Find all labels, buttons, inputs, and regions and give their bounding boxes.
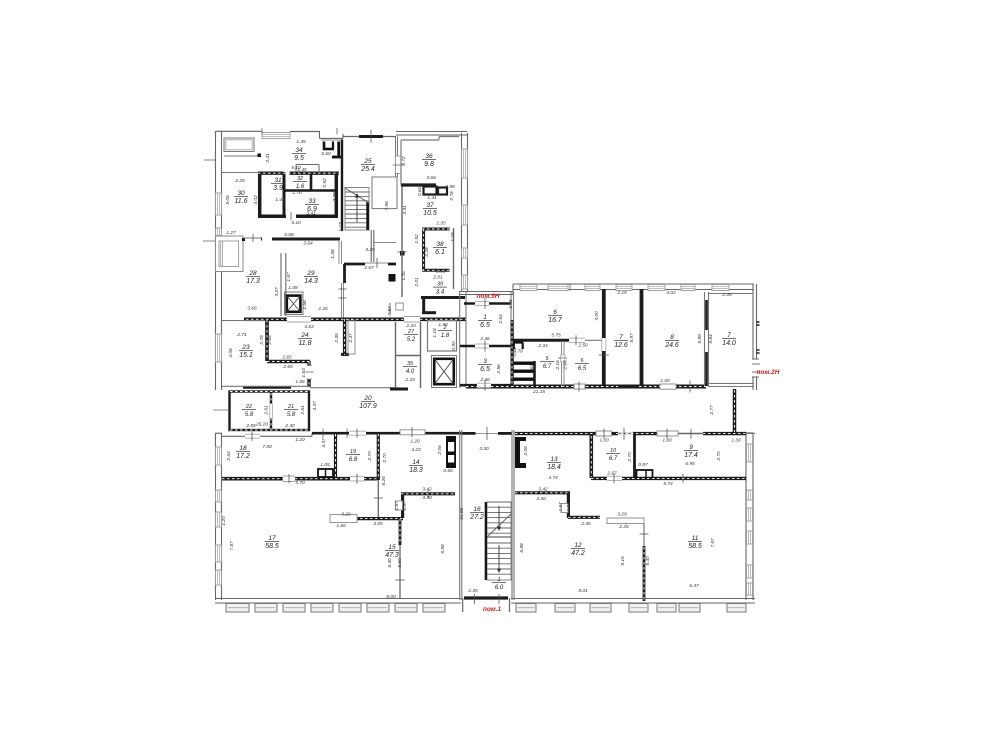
svg-text:2.56: 2.56	[496, 364, 502, 375]
svg-text:21: 21	[287, 404, 294, 410]
svg-text:1.63: 1.63	[529, 364, 535, 374]
svg-text:2.01: 2.01	[432, 275, 443, 281]
svg-text:0.97: 0.97	[638, 462, 648, 468]
svg-text:1.66: 1.66	[336, 523, 346, 529]
svg-text:1.57: 1.57	[402, 501, 408, 511]
svg-text:7.87: 7.87	[229, 541, 235, 551]
svg-text:1.06: 1.06	[295, 379, 305, 385]
svg-text:32: 32	[297, 176, 303, 182]
svg-text:7.87: 7.87	[710, 538, 716, 548]
svg-text:17.4: 17.4	[684, 452, 698, 459]
svg-text:14.3: 14.3	[304, 278, 318, 285]
svg-text:5.25: 5.25	[381, 476, 387, 486]
svg-text:0.90: 0.90	[451, 341, 457, 351]
svg-text:24: 24	[300, 332, 309, 339]
svg-text:1.30: 1.30	[731, 438, 741, 444]
svg-text:9.70: 9.70	[295, 480, 305, 486]
svg-text:1.00: 1.00	[599, 438, 609, 444]
svg-text:6.5: 6.5	[480, 366, 490, 373]
svg-text:1.41: 1.41	[427, 195, 437, 201]
svg-text:5.99: 5.99	[697, 334, 703, 344]
svg-text:0.92: 0.92	[322, 178, 328, 188]
svg-text:3.4: 3.4	[436, 290, 445, 296]
svg-text:1.52: 1.52	[414, 234, 420, 244]
svg-text:1.57: 1.57	[394, 501, 400, 511]
svg-text:10.5: 10.5	[423, 210, 437, 217]
svg-text:6.7: 6.7	[609, 456, 618, 462]
svg-text:1.45: 1.45	[297, 167, 307, 173]
svg-text:2.78: 2.78	[449, 191, 455, 202]
svg-text:1.8: 1.8	[441, 333, 450, 339]
svg-text:2.70: 2.70	[627, 452, 633, 463]
svg-text:2.46: 2.46	[479, 336, 490, 342]
svg-text:0.61: 0.61	[417, 187, 423, 197]
svg-text:3.02: 3.02	[253, 195, 259, 205]
svg-text:2.06: 2.06	[523, 446, 529, 457]
svg-text:4.08: 4.08	[228, 348, 234, 358]
svg-text:3.41: 3.41	[306, 211, 316, 217]
svg-text:2.70: 2.70	[367, 451, 373, 462]
svg-text:5.10: 5.10	[291, 220, 301, 226]
svg-text:5.40: 5.40	[645, 556, 651, 566]
svg-text:20: 20	[363, 395, 372, 402]
svg-text:1.55: 1.55	[508, 299, 514, 309]
svg-text:58.5: 58.5	[265, 543, 279, 550]
svg-text:38: 38	[436, 241, 444, 248]
svg-text:2.06: 2.06	[437, 445, 443, 456]
svg-text:1: 1	[497, 577, 500, 583]
svg-text:31: 31	[274, 177, 282, 184]
svg-text:18.3: 18.3	[409, 467, 423, 474]
svg-text:3.42: 3.42	[538, 487, 548, 493]
svg-text:1.27: 1.27	[226, 230, 236, 236]
svg-text:2.25: 2.25	[234, 178, 245, 184]
svg-text:3.05: 3.05	[373, 521, 383, 527]
svg-text:2.68: 2.68	[563, 360, 569, 371]
svg-text:22: 22	[245, 404, 252, 410]
svg-text:3.30: 3.30	[479, 446, 489, 452]
svg-text:34: 34	[295, 147, 303, 154]
svg-text:21.15: 21.15	[532, 389, 545, 395]
svg-text:8.00: 8.00	[386, 594, 396, 600]
svg-text:4.63: 4.63	[304, 324, 314, 330]
svg-text:47.3: 47.3	[385, 552, 399, 559]
svg-text:19: 19	[350, 449, 356, 455]
svg-text:1.35: 1.35	[468, 588, 478, 594]
svg-text:11.8: 11.8	[298, 340, 311, 347]
svg-text:5.8: 5.8	[245, 412, 254, 418]
svg-text:29: 29	[306, 270, 315, 277]
svg-text:1.90: 1.90	[438, 322, 448, 328]
svg-text:6.5: 6.5	[480, 322, 490, 329]
svg-text:7.00: 7.00	[262, 444, 272, 450]
svg-text:3: 3	[483, 358, 487, 365]
svg-text:2.55: 2.55	[245, 423, 256, 429]
svg-text:17.3: 17.3	[246, 278, 260, 285]
svg-text:2.01: 2.01	[414, 277, 420, 288]
svg-text:1.20: 1.20	[410, 439, 420, 445]
svg-text:3.27: 3.27	[274, 287, 280, 297]
svg-text:5.97: 5.97	[629, 333, 635, 343]
svg-text:30: 30	[237, 190, 245, 197]
svg-text:2.16: 2.16	[555, 360, 561, 371]
svg-text:1.08: 1.08	[288, 285, 298, 291]
svg-text:1.00: 1.00	[662, 438, 672, 444]
svg-text:9.8: 9.8	[424, 161, 434, 168]
svg-text:17: 17	[268, 535, 276, 542]
svg-text:3.00: 3.00	[594, 311, 600, 321]
svg-text:9.74: 9.74	[663, 481, 673, 487]
svg-text:0.60: 0.60	[443, 468, 453, 474]
svg-text:8: 8	[670, 334, 674, 341]
svg-text:3.30: 3.30	[422, 495, 432, 501]
svg-text:107.9: 107.9	[359, 403, 377, 410]
svg-text:1.63: 1.63	[301, 368, 307, 378]
svg-text:2.67: 2.67	[606, 471, 617, 477]
svg-text:2.65: 2.65	[282, 364, 293, 370]
svg-text:5.75: 5.75	[551, 333, 561, 339]
svg-text:18.4: 18.4	[547, 464, 561, 471]
svg-text:2.47: 2.47	[348, 333, 354, 344]
svg-text:58.5: 58.5	[688, 543, 702, 550]
svg-text:2.63: 2.63	[267, 335, 273, 346]
svg-text:1.17: 1.17	[338, 222, 344, 232]
svg-text:7: 7	[619, 334, 623, 341]
svg-text:24.6: 24.6	[664, 342, 679, 349]
svg-text:14: 14	[412, 459, 420, 466]
svg-text:1.70: 1.70	[292, 190, 302, 196]
svg-text:8.01: 8.01	[578, 588, 588, 594]
svg-text:6.88: 6.88	[519, 543, 525, 553]
svg-text:4.23: 4.23	[411, 447, 421, 453]
svg-text:14.0: 14.0	[722, 340, 736, 347]
svg-text:2.28: 2.28	[424, 247, 430, 258]
svg-text:2.75: 2.75	[259, 335, 265, 346]
svg-text:11: 11	[692, 535, 699, 542]
svg-text:1.05: 1.05	[320, 462, 330, 468]
svg-text:1.00: 1.00	[660, 378, 670, 384]
svg-text:2.70: 2.70	[382, 453, 388, 464]
svg-text:3.31: 3.31	[402, 205, 408, 215]
svg-text:7: 7	[727, 332, 731, 339]
svg-text:2.77: 2.77	[709, 405, 715, 416]
svg-text:пом.2Н: пом.2Н	[757, 369, 780, 376]
svg-text:2.13: 2.13	[435, 269, 446, 275]
svg-text:3.66: 3.66	[247, 306, 257, 312]
svg-text:17.2: 17.2	[236, 453, 250, 460]
svg-text:2.71: 2.71	[236, 332, 247, 338]
svg-text:15: 15	[388, 544, 396, 551]
svg-text:2.46: 2.46	[479, 377, 490, 383]
svg-text:3.20: 3.20	[341, 512, 351, 518]
svg-text:36: 36	[425, 153, 433, 160]
svg-text:4.37: 4.37	[312, 401, 318, 411]
svg-text:2.64: 2.64	[498, 314, 504, 325]
svg-text:3.9: 3.9	[273, 185, 283, 192]
svg-text:3.64: 3.64	[303, 241, 313, 247]
svg-text:3.29: 3.29	[365, 247, 375, 253]
svg-text:16: 16	[473, 506, 481, 513]
svg-text:2.26: 2.26	[317, 306, 328, 312]
svg-text:11.6: 11.6	[234, 198, 247, 205]
svg-text:47.2: 47.2	[571, 550, 585, 557]
svg-text:9: 9	[689, 444, 693, 451]
svg-text:27.2: 27.2	[469, 514, 484, 521]
svg-text:2.61: 2.61	[300, 405, 306, 416]
svg-text:4.37: 4.37	[321, 438, 327, 448]
svg-text:1.57: 1.57	[558, 502, 564, 512]
svg-text:3.30: 3.30	[536, 496, 546, 502]
svg-text:1.6: 1.6	[296, 184, 305, 190]
svg-text:2.35: 2.35	[334, 333, 340, 344]
svg-text:2.45: 2.45	[580, 521, 591, 527]
svg-text:2.33: 2.33	[404, 377, 415, 383]
svg-text:6.7: 6.7	[543, 364, 552, 370]
svg-text:6.95: 6.95	[685, 461, 695, 467]
svg-text:3.66: 3.66	[426, 175, 436, 181]
svg-text:1.58: 1.58	[302, 300, 308, 310]
svg-text:2.34: 2.34	[537, 343, 548, 349]
svg-text:пом.9Н: пом.9Н	[477, 293, 500, 300]
svg-text:4.0: 4.0	[406, 369, 415, 375]
svg-text:2.70: 2.70	[716, 451, 722, 462]
svg-text:3.29: 3.29	[617, 512, 627, 518]
svg-text:37: 37	[426, 202, 434, 209]
svg-text:6.08: 6.08	[284, 232, 294, 238]
svg-text:9.5: 9.5	[294, 155, 304, 162]
svg-text:1.20: 1.20	[295, 437, 305, 443]
svg-text:2.67: 2.67	[363, 265, 374, 271]
svg-text:2.26: 2.26	[618, 524, 629, 530]
svg-text:6.88: 6.88	[440, 544, 446, 554]
svg-text:пом.1: пом.1	[483, 606, 502, 613]
svg-text:1.67: 1.67	[286, 272, 292, 282]
svg-text:10.98: 10.98	[459, 508, 465, 520]
svg-text:35: 35	[407, 361, 414, 367]
svg-text:6.0: 6.0	[495, 585, 504, 591]
svg-text:0.98: 0.98	[445, 184, 455, 190]
svg-text:12: 12	[574, 542, 582, 549]
svg-text:39: 39	[437, 282, 443, 288]
svg-text:0.60: 0.60	[321, 151, 331, 157]
svg-text:5.8: 5.8	[287, 412, 296, 418]
svg-text:4.74: 4.74	[548, 475, 558, 481]
svg-text:2.72: 2.72	[401, 156, 407, 167]
svg-text:1.58: 1.58	[330, 249, 336, 259]
svg-text:13: 13	[550, 456, 558, 463]
svg-text:0.79: 0.79	[513, 349, 523, 355]
svg-text:2.19: 2.19	[616, 290, 627, 296]
svg-text:5.15: 5.15	[620, 556, 626, 566]
svg-text:1.45: 1.45	[275, 197, 285, 203]
svg-text:2.45: 2.45	[721, 292, 732, 298]
svg-text:15.1: 15.1	[239, 352, 253, 359]
svg-text:5.40: 5.40	[387, 558, 393, 568]
svg-text:2.50: 2.50	[577, 343, 588, 349]
svg-text:1.57: 1.57	[566, 502, 572, 512]
svg-text:2.33: 2.33	[405, 323, 416, 329]
svg-text:12.6: 12.6	[614, 342, 628, 349]
svg-text:6.47: 6.47	[689, 583, 699, 589]
svg-text:2.65: 2.65	[281, 355, 292, 361]
svg-text:2.31: 2.31	[265, 153, 271, 164]
svg-text:33: 33	[308, 198, 316, 205]
svg-text:23: 23	[241, 344, 250, 351]
svg-text:5.2: 5.2	[407, 337, 416, 343]
svg-text:16.7: 16.7	[548, 317, 563, 324]
svg-text:27: 27	[407, 329, 415, 335]
svg-text:2.61: 2.61	[264, 405, 270, 416]
svg-text:3.42: 3.42	[422, 487, 432, 493]
svg-text:2.64: 2.64	[226, 451, 232, 462]
svg-text:1.35: 1.35	[401, 271, 407, 281]
svg-text:6: 6	[553, 309, 557, 316]
svg-text:5.60: 5.60	[397, 558, 403, 568]
svg-text:1.18: 1.18	[432, 328, 438, 338]
svg-text:2.78: 2.78	[332, 192, 338, 203]
svg-text:25: 25	[363, 158, 372, 165]
svg-text:1.08: 1.08	[450, 232, 456, 242]
svg-text:28: 28	[248, 270, 257, 277]
svg-text:6.5: 6.5	[578, 366, 587, 372]
svg-text:4.02: 4.02	[666, 290, 676, 296]
svg-text:26.20: 26.20	[255, 422, 268, 428]
svg-text:1: 1	[483, 314, 487, 321]
svg-text:5.05: 5.05	[225, 195, 231, 205]
svg-text:5.84: 5.84	[708, 334, 714, 344]
svg-text:1.20: 1.20	[221, 516, 227, 526]
svg-text:6.1: 6.1	[435, 249, 445, 256]
svg-text:25.4: 25.4	[360, 166, 375, 173]
svg-text:0.87: 0.87	[387, 306, 393, 316]
svg-text:1.45: 1.45	[296, 139, 306, 145]
svg-text:10: 10	[610, 448, 617, 454]
svg-text:18: 18	[239, 445, 247, 452]
svg-text:7.96: 7.96	[384, 201, 390, 211]
svg-text:2.30: 2.30	[284, 423, 295, 429]
svg-text:6.8: 6.8	[349, 457, 358, 463]
svg-text:2.35: 2.35	[435, 221, 446, 227]
